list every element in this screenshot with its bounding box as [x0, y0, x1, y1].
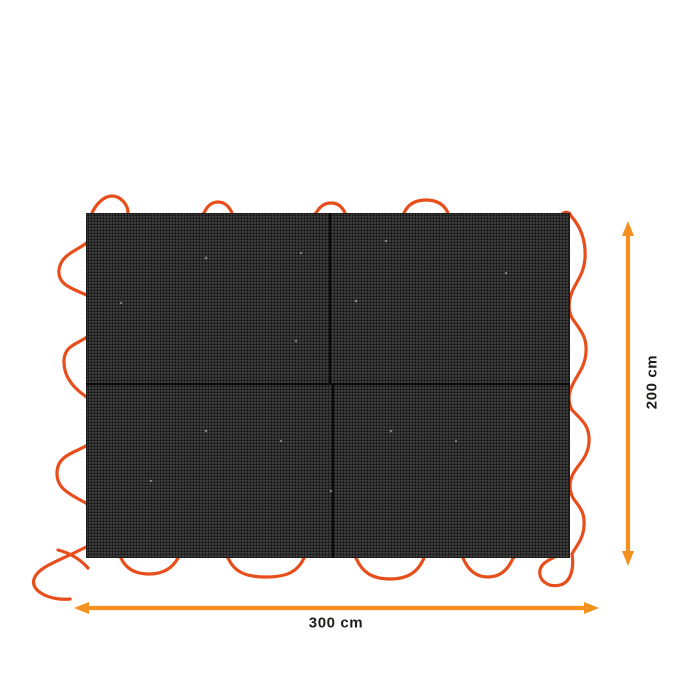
- dimension-arrows: [0, 0, 700, 700]
- vertical-dimension-arrow-icon: [622, 221, 634, 566]
- height-dimension-label: 200 cm: [644, 355, 661, 409]
- width-dimension-label: 300 cm: [309, 615, 363, 632]
- product-dimension-image: 300 cm 200 cm: [0, 0, 700, 700]
- horizontal-dimension-arrow-icon: [74, 602, 599, 614]
- fabric-specks: [120, 240, 507, 492]
